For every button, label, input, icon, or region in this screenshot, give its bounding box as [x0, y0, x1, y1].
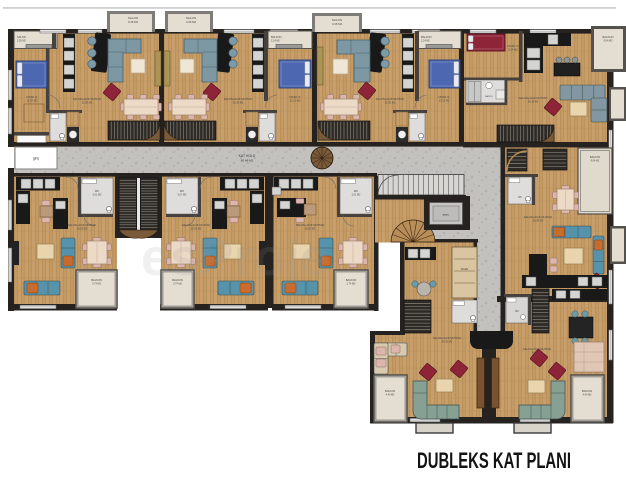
svg-text:3.01 M2: 3.01 M2 [93, 193, 102, 196]
svg-text:3.74 M2: 3.74 M2 [347, 283, 356, 286]
svg-text:WC: WC [518, 197, 522, 199]
svg-text:36.03 M2: 36.03 M2 [77, 228, 88, 231]
svg-text:asan.: asan. [443, 213, 450, 217]
svg-text:5.04 M2: 5.04 M2 [603, 40, 613, 43]
svg-text:BALKON: BALKON [271, 35, 282, 39]
svg-text:SALON: SALON [17, 35, 26, 39]
svg-text:32.00 M2: 32.00 M2 [82, 102, 93, 105]
svg-text:3.46 M2: 3.46 M2 [186, 20, 197, 24]
svg-text:SALON+AÇIK MUTFAK: SALON+AÇIK MUTFAK [519, 96, 548, 100]
svg-text:4.40 M2: 4.40 M2 [583, 394, 592, 397]
svg-text:9.04 M2: 9.04 M2 [591, 160, 600, 163]
svg-text:BANYO: BANYO [485, 95, 493, 98]
svg-text:YATAK O.: YATAK O. [289, 95, 301, 99]
svg-text:3.01 M2: 3.01 M2 [352, 193, 361, 196]
svg-text:YATAK O.: YATAK O. [438, 95, 450, 99]
svg-text:WC: WC [515, 311, 519, 313]
svg-text:42.02 M2: 42.02 M2 [442, 341, 453, 344]
svg-text:SALON+AÇIK MUTFAK: SALON+AÇIK MUTFAK [524, 215, 553, 219]
svg-text:12.11 M2: 12.11 M2 [290, 99, 301, 103]
svg-text:giriş: giriş [33, 157, 40, 161]
svg-text:SALON+AÇIK MUTFAK: SALON+AÇIK MUTFAK [182, 223, 211, 227]
svg-text:4.40 M2: 4.40 M2 [386, 394, 395, 397]
svg-text:2.24 M2: 2.24 M2 [271, 40, 280, 43]
svg-text:SALON+AÇIK MUTFAK: SALON+AÇIK MUTFAK [68, 223, 97, 227]
svg-text:2.29 M2: 2.29 M2 [17, 40, 26, 43]
svg-text:8.24 M2: 8.24 M2 [508, 48, 518, 52]
svg-text:SALON+AÇIK MUTFAK: SALON+AÇIK MUTFAK [296, 223, 325, 227]
svg-text:SALON+AÇIK MUTFAK: SALON+AÇIK MUTFAK [73, 97, 102, 101]
svg-text:3.74 M2: 3.74 M2 [92, 283, 101, 286]
svg-text:YATAK O.: YATAK O. [26, 95, 38, 99]
svg-text:2.24 M2: 2.24 M2 [421, 40, 430, 43]
svg-text:SALON+AÇIK MUTFAK: SALON+AÇIK MUTFAK [433, 336, 462, 340]
svg-text:esProje: esProje [141, 229, 329, 287]
svg-text:BALKON: BALKON [91, 278, 102, 282]
svg-text:YATAK O.: YATAK O. [507, 44, 519, 48]
svg-text:12.07 M2: 12.07 M2 [27, 99, 38, 103]
svg-text:SALON+AÇIK MUTFAK: SALON+AÇIK MUTFAK [376, 97, 405, 101]
svg-text:3.46 M2: 3.46 M2 [332, 22, 343, 26]
svg-text:DUBLEKS KAT PLANI: DUBLEKS KAT PLANI [417, 448, 571, 473]
svg-text:12.11 M2: 12.11 M2 [439, 99, 450, 103]
svg-text:38.00 M2: 38.00 M2 [533, 220, 544, 223]
svg-text:KİLER: KİLER [461, 268, 468, 271]
svg-text:KAT HOLÜ: KAT HOLÜ [239, 154, 256, 158]
svg-text:60.48 M2: 60.48 M2 [241, 159, 254, 163]
svg-text:BALKON: BALKON [346, 278, 357, 282]
svg-text:3.07 M2: 3.07 M2 [178, 193, 187, 196]
svg-text:39.18 M2: 39.18 M2 [528, 101, 539, 104]
svg-text:3.46 M2: 3.46 M2 [128, 20, 139, 24]
svg-text:BALKON: BALKON [603, 35, 614, 39]
svg-text:32.00 M2: 32.00 M2 [233, 102, 244, 105]
svg-text:32.00 M2: 32.00 M2 [385, 102, 396, 105]
svg-text:BALKON: BALKON [421, 35, 432, 39]
svg-text:SALON+AÇIK MUTFAK: SALON+AÇIK MUTFAK [224, 97, 253, 101]
